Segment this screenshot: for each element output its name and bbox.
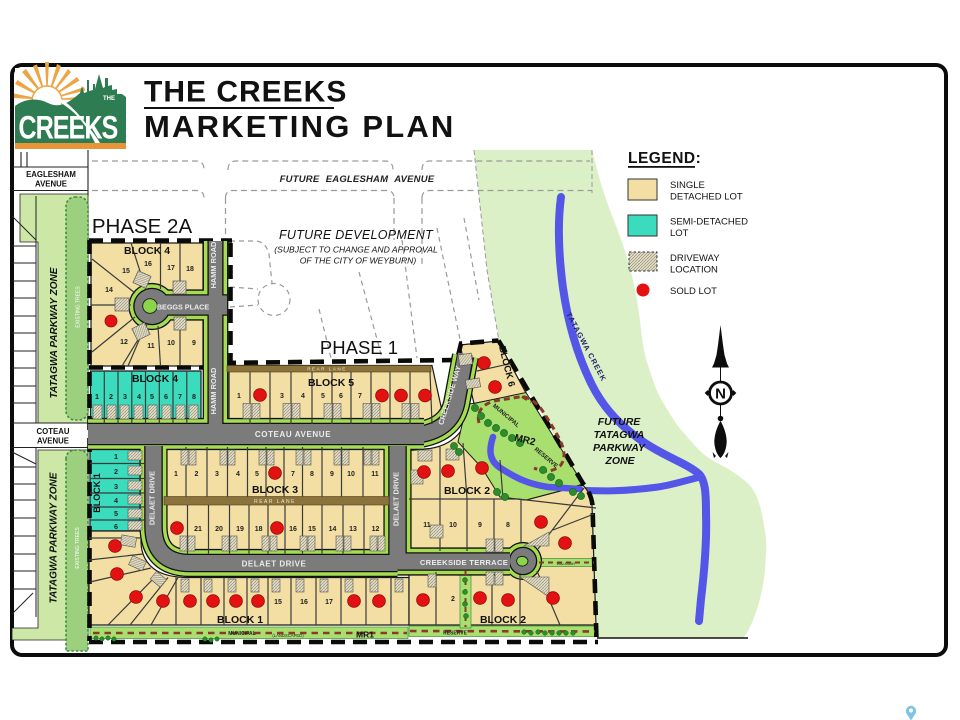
svg-text:DETACHED LOT: DETACHED LOT — [670, 192, 743, 203]
svg-text:BLOCK 4: BLOCK 4 — [132, 373, 178, 385]
svg-text:14: 14 — [105, 287, 113, 294]
svg-text:FUTURE DEVELOPMENT: FUTURE DEVELOPMENT — [279, 228, 434, 242]
svg-text:BLOCK 3: BLOCK 3 — [252, 484, 298, 496]
svg-text:17: 17 — [325, 599, 333, 606]
svg-text:18: 18 — [255, 526, 263, 533]
svg-text:16: 16 — [300, 599, 308, 606]
svg-text:5: 5 — [255, 471, 259, 478]
svg-text:DELAET DRIVE: DELAET DRIVE — [148, 471, 157, 525]
svg-text:19: 19 — [236, 526, 244, 533]
svg-text:10: 10 — [347, 471, 355, 478]
svg-text:4: 4 — [301, 393, 305, 400]
svg-text:7: 7 — [291, 471, 295, 478]
svg-text:1: 1 — [237, 393, 241, 400]
svg-text:TATAGWA PARKWAY ZONE: TATAGWA PARKWAY ZONE — [49, 472, 60, 603]
svg-text:BLOCK 1: BLOCK 1 — [92, 473, 102, 513]
svg-text:5: 5 — [114, 509, 118, 518]
svg-text:6: 6 — [114, 522, 118, 531]
svg-text:9: 9 — [192, 340, 196, 347]
svg-text:6: 6 — [339, 393, 343, 400]
svg-text:15: 15 — [122, 268, 130, 275]
svg-text:8: 8 — [310, 471, 314, 478]
svg-text:12: 12 — [372, 526, 380, 533]
svg-text:3: 3 — [123, 392, 127, 401]
svg-text:TATAGWA PARKWAY ZONE: TATAGWA PARKWAY ZONE — [49, 267, 60, 398]
svg-text:N: N — [715, 386, 726, 403]
svg-text:TATAGWA: TATAGWA — [594, 429, 645, 441]
svg-text:MARKETING PLAN: MARKETING PLAN — [144, 109, 456, 144]
svg-text:1: 1 — [95, 392, 99, 401]
svg-text:17: 17 — [167, 265, 175, 272]
svg-text:WALKWAY: WALKWAY — [557, 562, 576, 566]
svg-text:CREEKSIDE TERRACE: CREEKSIDE TERRACE — [420, 558, 508, 567]
svg-text:(LANDSCAPED): (LANDSCAPED) — [272, 633, 304, 638]
svg-text:LEGEND:: LEGEND: — [628, 150, 701, 167]
svg-text:12: 12 — [120, 339, 128, 346]
svg-text:THE CREEKS: THE CREEKS — [144, 76, 347, 109]
svg-text:11: 11 — [147, 343, 155, 350]
svg-text:DRIVEWAY: DRIVEWAY — [670, 253, 720, 264]
svg-text:21: 21 — [194, 526, 202, 533]
svg-text:COTEAU AVENUE: COTEAU AVENUE — [255, 430, 331, 439]
svg-text:3: 3 — [215, 471, 219, 478]
svg-text:BLOCK 4: BLOCK 4 — [124, 245, 170, 257]
svg-text:AVENUE: AVENUE — [37, 437, 69, 446]
svg-text:4: 4 — [114, 496, 118, 505]
svg-text:PHASE 2A: PHASE 2A — [92, 215, 193, 238]
svg-text:5: 5 — [321, 393, 325, 400]
svg-text:BLOCK 1: BLOCK 1 — [217, 614, 263, 626]
svg-text:1: 1 — [174, 471, 178, 478]
svg-text:18: 18 — [186, 266, 194, 273]
svg-text:CREEKS: CREEKS — [18, 111, 119, 147]
svg-text:9: 9 — [330, 471, 334, 478]
svg-text:BLOCK 2: BLOCK 2 — [444, 485, 490, 497]
svg-text:5: 5 — [150, 392, 154, 401]
svg-text:LOCATION: LOCATION — [670, 265, 718, 276]
svg-text:REAR LANE: REAR LANE — [254, 499, 296, 505]
svg-text:11: 11 — [423, 522, 431, 529]
svg-text:SEMI-DETACHED: SEMI-DETACHED — [670, 217, 748, 228]
svg-text:BEGGS PLACE: BEGGS PLACE — [157, 303, 210, 312]
svg-text:AVENUE: AVENUE — [35, 180, 67, 189]
svg-text:16: 16 — [289, 526, 297, 533]
svg-text:PHASE 1: PHASE 1 — [320, 337, 398, 358]
svg-text:EXISTING TREES: EXISTING TREES — [75, 527, 81, 569]
svg-text:BLOCK 5: BLOCK 5 — [308, 377, 354, 389]
svg-text:9: 9 — [478, 522, 482, 529]
svg-text:4: 4 — [236, 471, 240, 478]
svg-text:MUNICIPAL: MUNICIPAL — [228, 631, 255, 637]
svg-text:BLOCK 2: BLOCK 2 — [480, 614, 526, 626]
svg-text:4: 4 — [137, 392, 141, 401]
svg-text:2: 2 — [114, 467, 118, 476]
svg-text:3: 3 — [114, 482, 118, 491]
svg-text:EXISTING TREES: EXISTING TREES — [76, 286, 82, 328]
svg-text:ZONE: ZONE — [604, 455, 635, 467]
svg-text:PARKWAY: PARKWAY — [593, 442, 646, 454]
svg-text:15: 15 — [308, 526, 316, 533]
svg-text:THE: THE — [103, 96, 115, 102]
svg-text:FUTURE: FUTURE — [598, 416, 642, 428]
svg-text:10: 10 — [167, 340, 175, 347]
svg-text:2: 2 — [451, 596, 455, 603]
svg-text:8: 8 — [506, 522, 510, 529]
svg-text:6: 6 — [164, 392, 168, 401]
svg-text:10: 10 — [449, 522, 457, 529]
svg-text:7: 7 — [358, 393, 362, 400]
svg-text:2: 2 — [109, 392, 113, 401]
svg-text:3: 3 — [280, 393, 284, 400]
svg-text:OF THE CITY OF WEYBURN): OF THE CITY OF WEYBURN) — [300, 256, 417, 266]
svg-text:FUTURE EAGLESHAM AVENUE: FUTURE EAGLESHAM AVENUE — [280, 174, 435, 185]
svg-text:REAR LANE: REAR LANE — [307, 367, 347, 372]
svg-text:11: 11 — [371, 471, 379, 478]
svg-text:HAMM ROAD: HAMM ROAD — [209, 241, 218, 288]
svg-text:DELAET DRIVE: DELAET DRIVE — [242, 560, 307, 569]
svg-text:14: 14 — [329, 526, 337, 533]
svg-text:20: 20 — [215, 526, 223, 533]
svg-text:HAMM ROAD: HAMM ROAD — [209, 367, 218, 414]
svg-text:2: 2 — [195, 471, 199, 478]
svg-text:SOLD LOT: SOLD LOT — [670, 286, 717, 297]
svg-text:EAGLESHAM: EAGLESHAM — [26, 170, 76, 179]
svg-text:13: 13 — [349, 526, 357, 533]
svg-text:SINGLE: SINGLE — [670, 180, 705, 191]
svg-text:8: 8 — [192, 392, 196, 401]
svg-text:1: 1 — [114, 452, 118, 461]
svg-text:LOT: LOT — [670, 228, 689, 239]
svg-text:RESERVE: RESERVE — [443, 631, 467, 637]
svg-text:MR1: MR1 — [356, 630, 374, 640]
svg-text:16: 16 — [144, 261, 152, 268]
svg-text:7: 7 — [178, 392, 182, 401]
svg-text:(SUBJECT TO CHANGE AND APPROVA: (SUBJECT TO CHANGE AND APPROVAL — [274, 245, 438, 255]
svg-text:DELAET DRIVE: DELAET DRIVE — [392, 472, 401, 526]
svg-text:COTEAU: COTEAU — [37, 427, 70, 436]
svg-text:15: 15 — [274, 599, 282, 606]
